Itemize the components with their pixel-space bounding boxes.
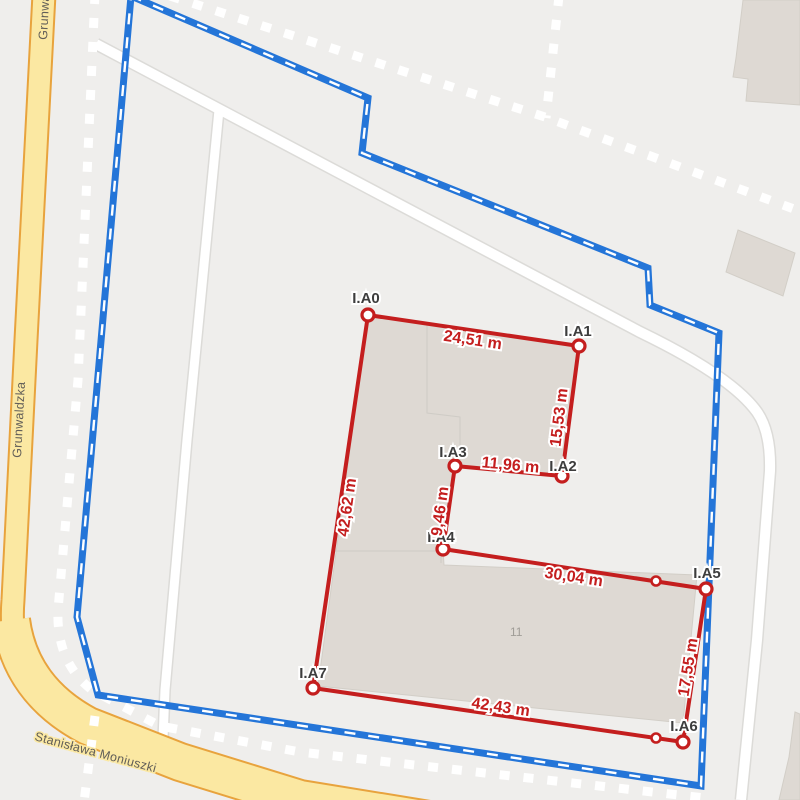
vertex-marker-ia5[interactable] [700,583,712,595]
intermediate-point[interactable] [652,577,661,586]
building-number-label: 11 [510,625,523,639]
vertex-label-ia5: I.A5 [693,565,721,582]
vertex-marker-ia0[interactable] [362,309,374,321]
vertex-label-ia0: I.A0 [352,290,380,307]
vertex-label-ia7: I.A7 [299,665,327,682]
vertex-label-ia6: I.A6 [670,718,698,735]
vertex-marker-ia7[interactable] [307,682,319,694]
vertex-label-ia2: I.A2 [549,458,577,475]
map-canvas[interactable]: Grunwaldzka Grunwaldzka Stanisława Moniu… [0,0,800,800]
intermediate-point[interactable] [652,734,661,743]
vertex-label-ia1: I.A1 [564,323,592,340]
vertex-marker-ia1[interactable] [573,340,585,352]
vertex-label-ia3: I.A3 [439,444,467,461]
vertex-marker-ia6[interactable] [677,736,689,748]
vertex-marker-ia3[interactable] [449,460,461,472]
